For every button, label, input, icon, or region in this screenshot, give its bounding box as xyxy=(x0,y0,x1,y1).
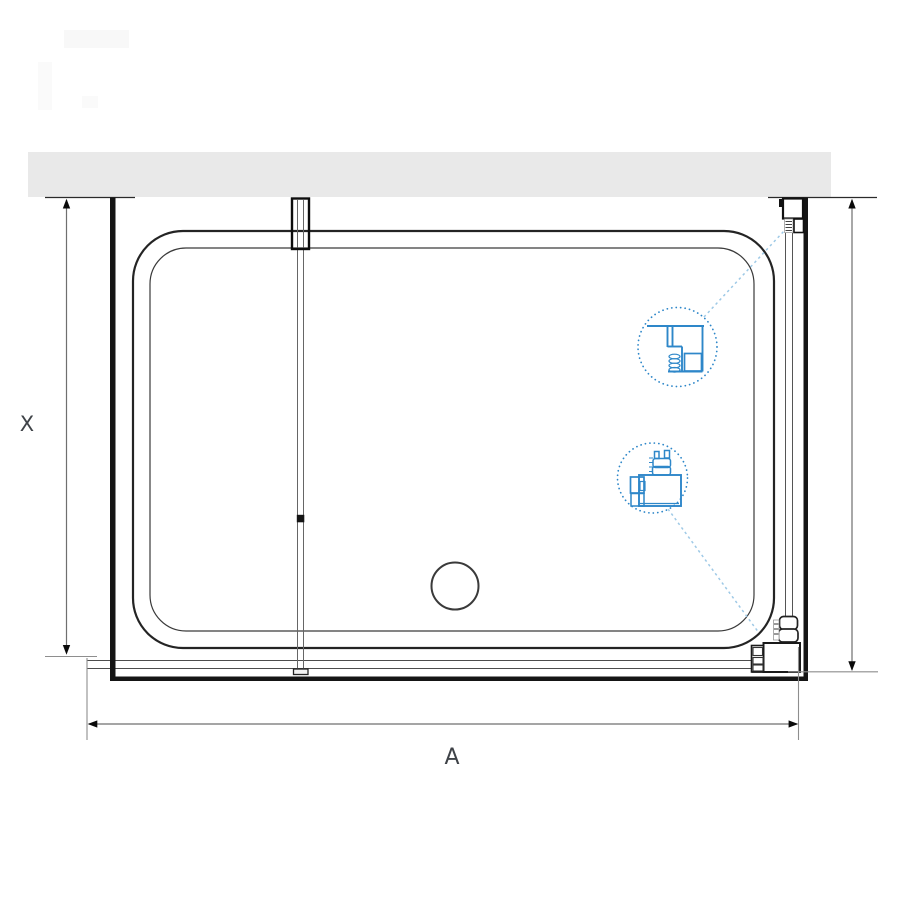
callout-top xyxy=(638,308,717,387)
glass-foot xyxy=(294,669,309,675)
right-glass-panel xyxy=(786,233,793,617)
x-dimension-label: X xyxy=(20,412,34,436)
callout-leaders xyxy=(668,231,784,633)
glass-connector-dot xyxy=(297,515,305,523)
center-wall-bracket xyxy=(292,199,309,250)
dimension-a: A xyxy=(87,647,799,770)
shower-enclosure-plan: X A xyxy=(0,0,900,900)
bracket-tab xyxy=(779,199,784,207)
top-right-bracket xyxy=(779,199,804,233)
floor-profile-block xyxy=(752,643,801,672)
watermark xyxy=(38,30,129,110)
a-dimension-label: A xyxy=(444,745,459,770)
dimension-x: X xyxy=(20,199,97,657)
bottom-rail-lines xyxy=(87,661,800,669)
arrow-down-icon xyxy=(63,645,70,655)
arrow-up-icon xyxy=(848,199,855,209)
drawing-canvas: X A xyxy=(0,0,900,900)
wall-band xyxy=(28,152,831,197)
arrow-up-icon xyxy=(63,199,70,209)
arrow-down-icon xyxy=(848,661,855,671)
dimension-right xyxy=(788,199,878,672)
right-wall-profile xyxy=(804,198,809,680)
glass-clamp xyxy=(779,617,799,643)
callout-circle xyxy=(618,443,688,513)
drain-circle xyxy=(432,563,479,610)
left-side-panel xyxy=(110,198,116,680)
clamp-spring-icon xyxy=(774,620,780,640)
bottom-right-hardware xyxy=(752,617,801,673)
arrow-right-icon xyxy=(789,720,799,727)
bottom-panel xyxy=(110,677,808,682)
gasket-spring-icon xyxy=(785,219,804,233)
callout-bottom xyxy=(618,443,688,513)
center-glass-panel xyxy=(292,199,309,675)
arrow-left-icon xyxy=(88,720,98,727)
